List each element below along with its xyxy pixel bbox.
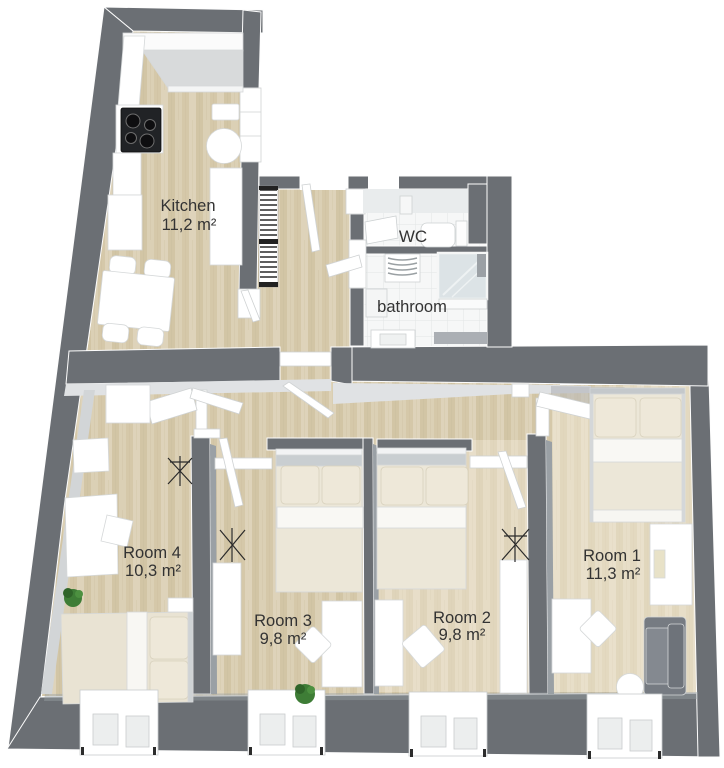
svg-text:11,3 m²: 11,3 m² <box>586 565 641 583</box>
svg-text:9,8 m²: 9,8 m² <box>260 630 307 648</box>
svg-text:9,8 m²: 9,8 m² <box>439 626 486 644</box>
svg-text:WC: WC <box>399 227 427 246</box>
svg-text:10,3 m²: 10,3 m² <box>125 562 181 580</box>
svg-text:Kitchen: Kitchen <box>160 197 215 215</box>
svg-text:Room 2: Room 2 <box>433 609 491 627</box>
svg-text:bathroom: bathroom <box>377 298 447 316</box>
svg-text:Room 3: Room 3 <box>254 612 312 630</box>
svg-text:Room 1: Room 1 <box>583 547 641 565</box>
svg-text:Room 4: Room 4 <box>123 544 181 562</box>
svg-text:11,2 m²: 11,2 m² <box>162 216 217 234</box>
